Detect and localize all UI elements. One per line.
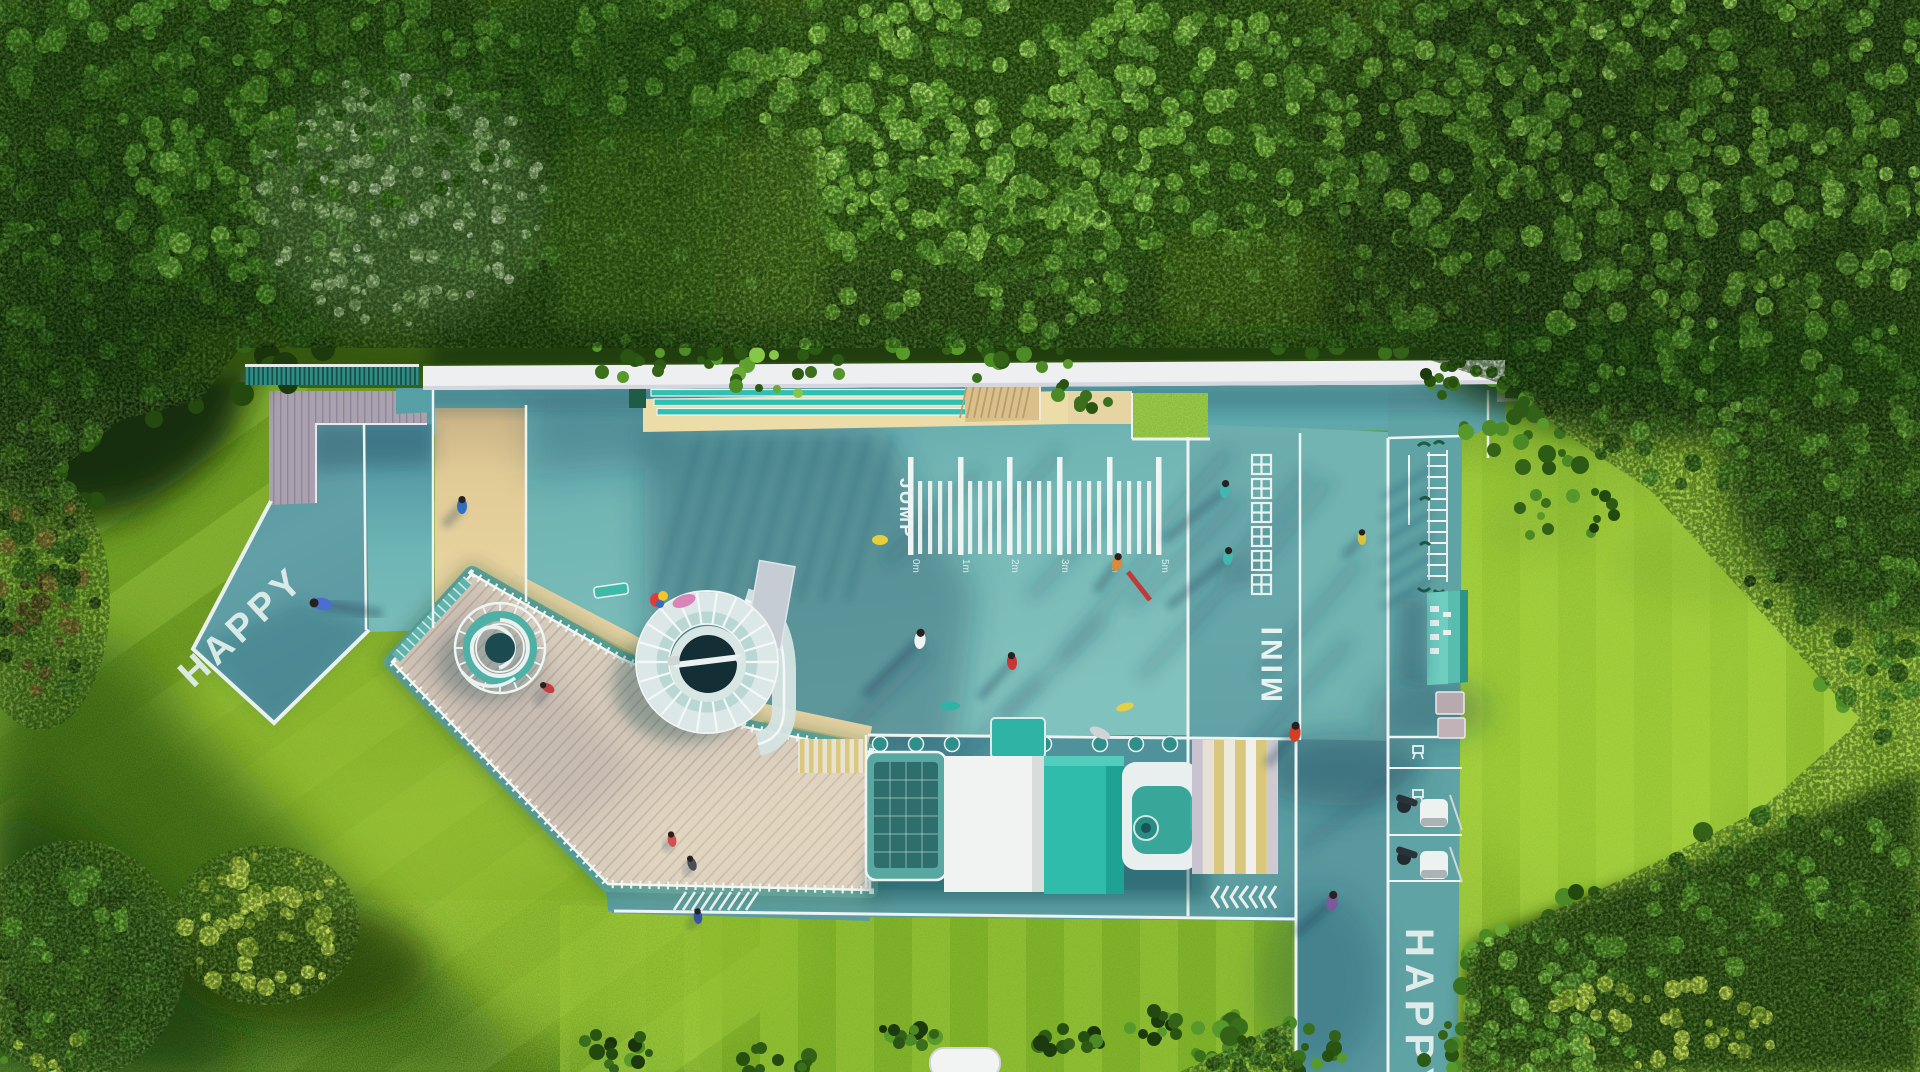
svg-text:0m: 0m	[910, 559, 921, 573]
svg-text:3m: 3m	[1059, 559, 1070, 573]
svg-text:2m: 2m	[1009, 559, 1020, 573]
svg-text:MINI: MINI	[1256, 623, 1289, 702]
svg-text:HAPPY: HAPPY	[1397, 928, 1441, 1072]
svg-text:5m: 5m	[1159, 559, 1170, 573]
svg-text:1m: 1m	[960, 559, 971, 573]
svg-text:JUMP: JUMP	[895, 478, 916, 539]
